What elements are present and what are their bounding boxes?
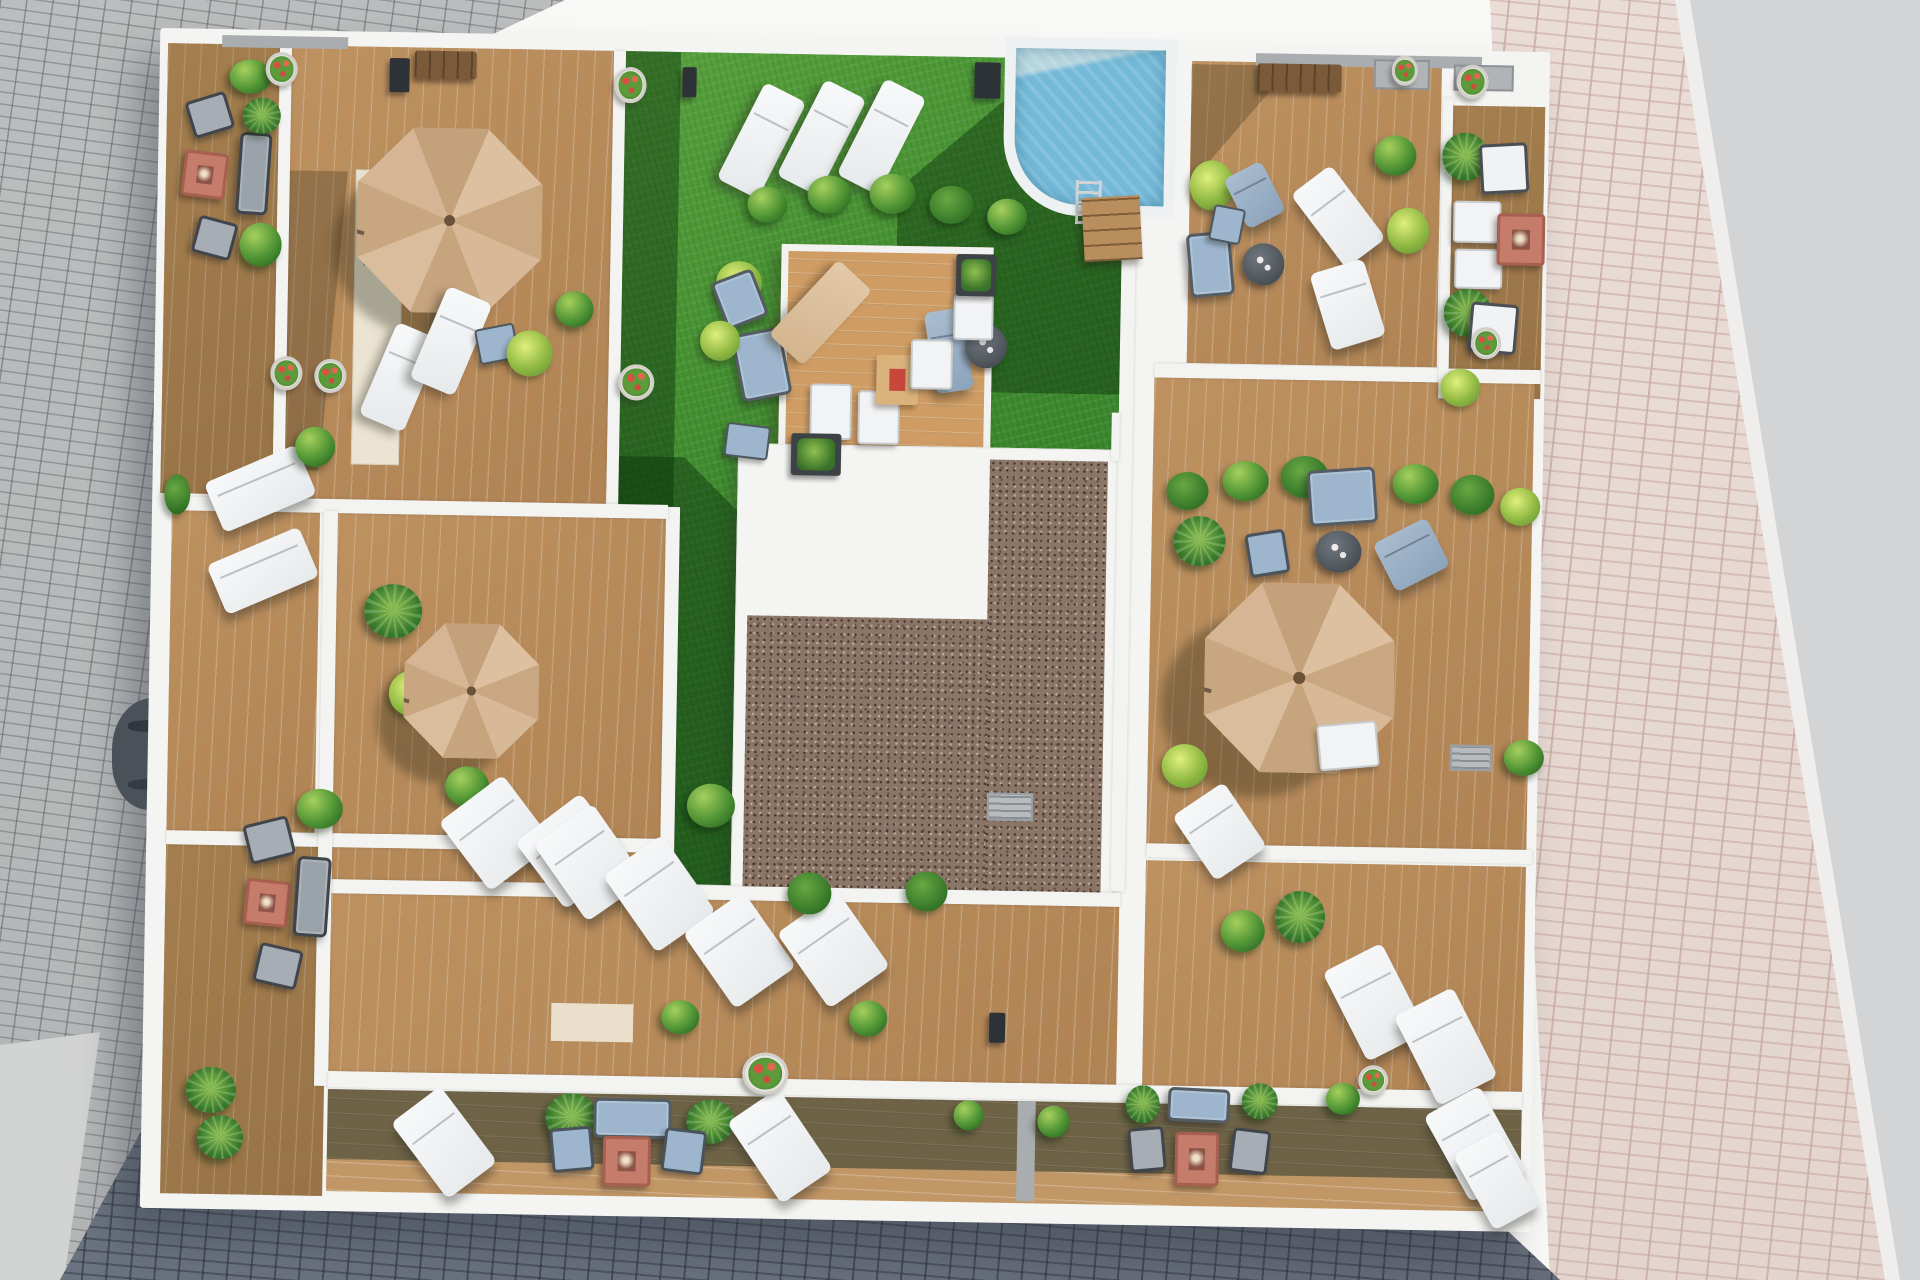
building-roof xyxy=(140,28,1550,1232)
armchair-blue xyxy=(660,1127,707,1176)
vent-dark xyxy=(974,62,1001,98)
gray-mat xyxy=(987,793,1033,822)
sofa-blue xyxy=(593,1098,672,1139)
armchair-gray xyxy=(1228,1127,1271,1175)
pad-white xyxy=(953,294,994,341)
pad-white xyxy=(1453,201,1502,244)
fire-table xyxy=(180,149,229,200)
gravel xyxy=(982,460,1108,895)
planter-dark xyxy=(791,433,842,476)
armchair-gray xyxy=(1127,1126,1167,1173)
fire-table xyxy=(1496,213,1545,266)
wall xyxy=(1111,413,1120,461)
chair-blue xyxy=(723,422,771,461)
fire-table xyxy=(602,1136,651,1187)
pad-white xyxy=(1454,249,1503,290)
sofa-gray xyxy=(235,132,273,216)
pad-white xyxy=(910,339,953,390)
bench-wood xyxy=(1257,63,1341,92)
armchair-white xyxy=(1479,142,1530,194)
gravel xyxy=(742,615,989,892)
vent-dark xyxy=(682,67,697,97)
pad-white xyxy=(1316,720,1380,771)
bench-wood xyxy=(415,50,477,79)
sofa-blue xyxy=(1167,1087,1231,1124)
armchair-blue xyxy=(549,1126,595,1173)
planter-dark xyxy=(956,254,997,297)
gray-mat xyxy=(1450,745,1492,772)
planter xyxy=(1456,65,1489,100)
wallcap xyxy=(1016,1101,1036,1201)
sofa-blue xyxy=(1307,466,1379,527)
aerial-rooftop-render xyxy=(0,0,1920,1280)
chair-blue xyxy=(1208,204,1246,245)
wallcap xyxy=(222,35,348,49)
vent-dark xyxy=(389,58,410,92)
vent-dark xyxy=(989,1013,1006,1043)
plant-yellow xyxy=(1500,487,1541,526)
pad-white xyxy=(809,383,852,440)
steps-wood xyxy=(1081,195,1142,262)
fire-table xyxy=(1174,1132,1219,1187)
fire-table xyxy=(243,878,292,928)
path-beige xyxy=(551,1003,634,1042)
sofa-gray xyxy=(293,856,332,938)
armchair-blue xyxy=(1244,529,1290,579)
